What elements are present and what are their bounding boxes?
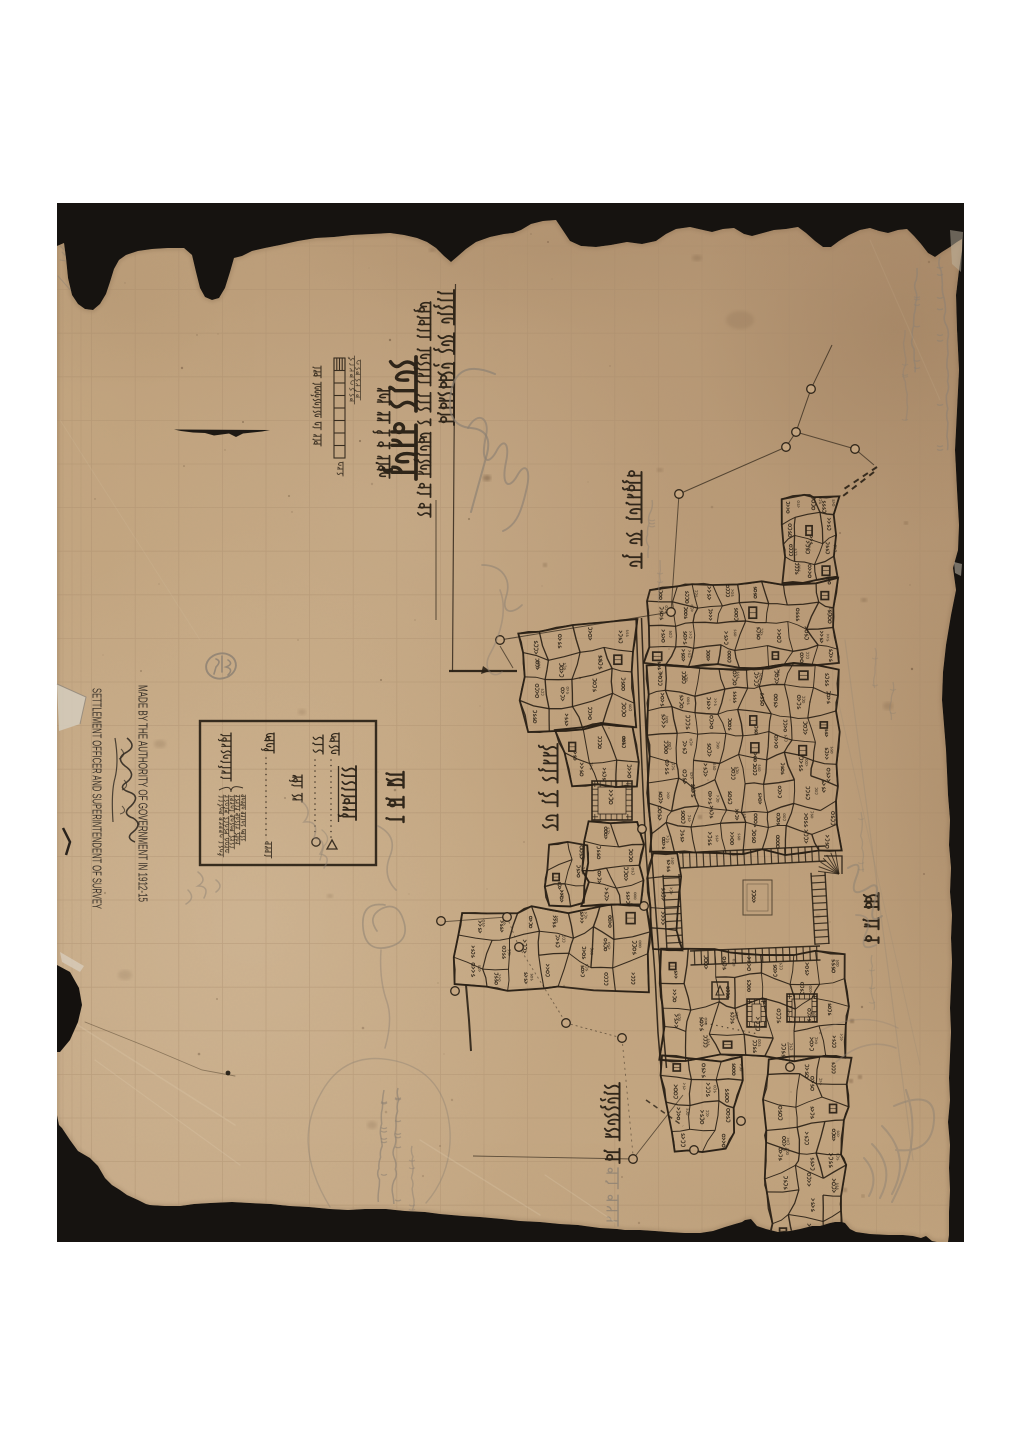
svg-text:SETTLEMENT OFFICER AND SUPERIN: SETTLEMENT OFFICER AND SUPERINTENDENT OF… (90, 688, 104, 909)
svg-text:MADE BY THE AUTHORITY OF GOVER: MADE BY THE AUTHORITY OF GOVERNMENT IN 1… (136, 685, 150, 902)
